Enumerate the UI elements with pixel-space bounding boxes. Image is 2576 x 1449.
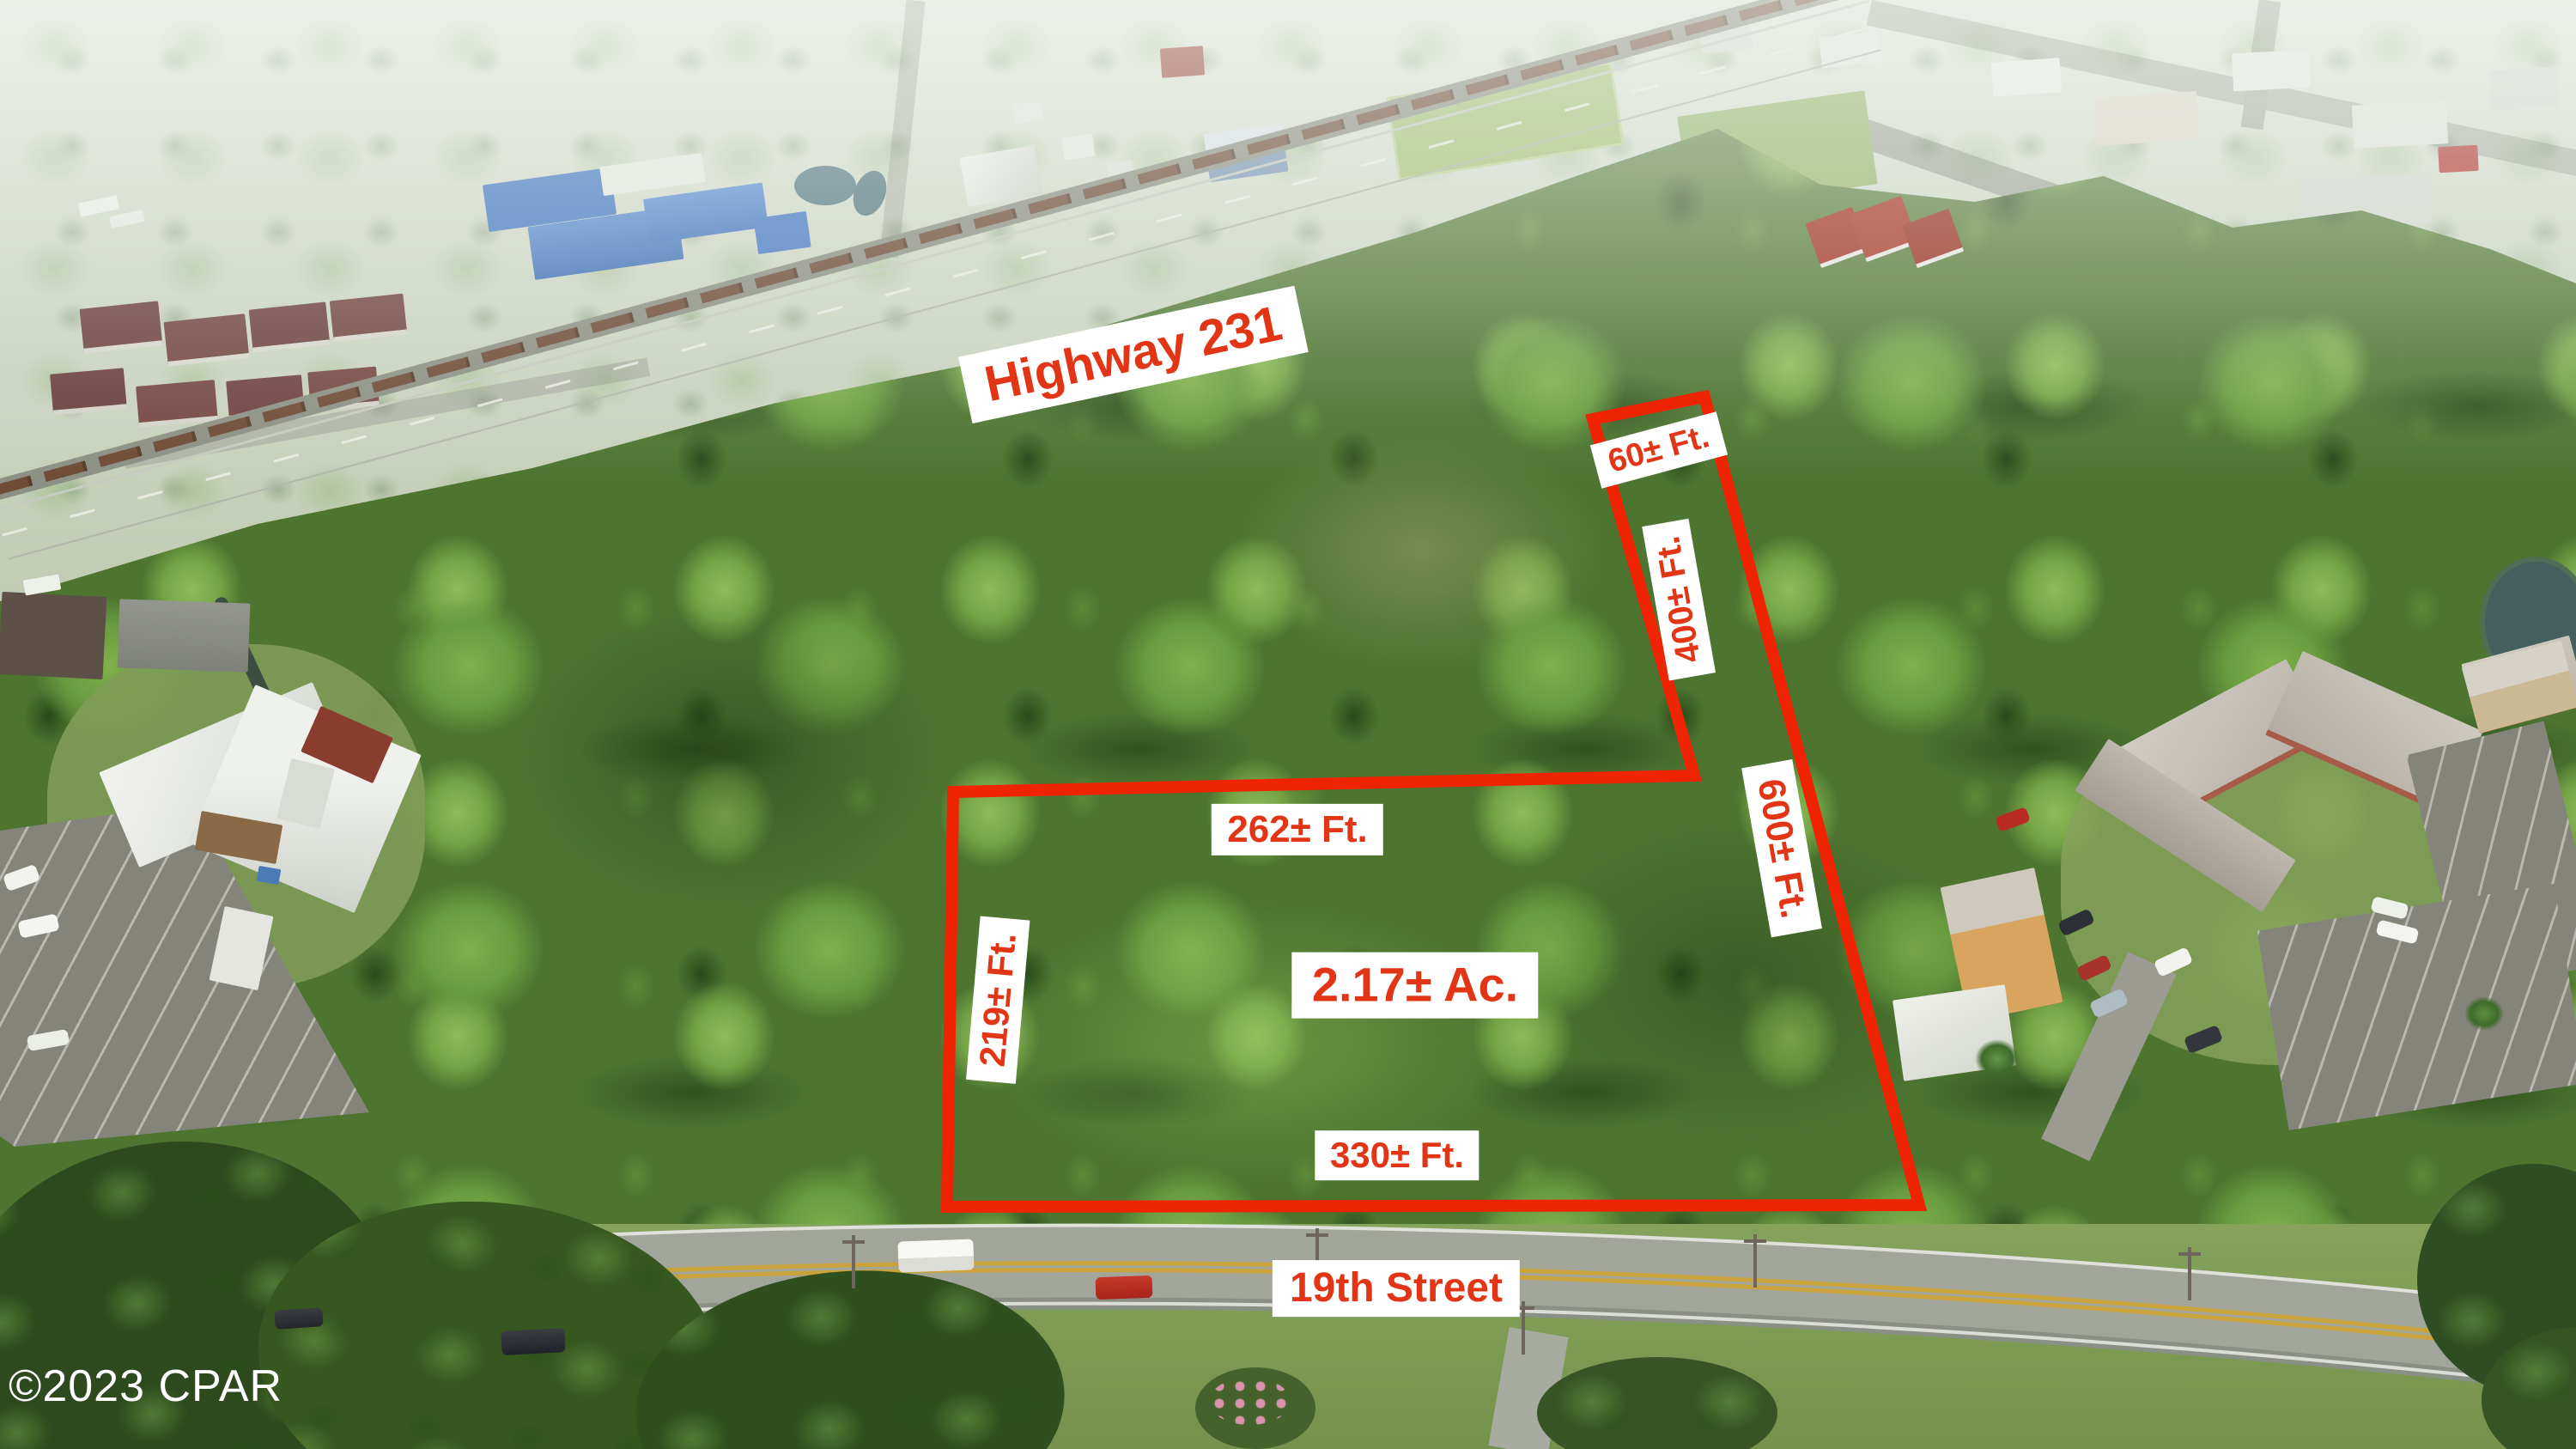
property-boundary	[0, 0, 2576, 1449]
street-19th-label: 19th Street	[1273, 1260, 1520, 1317]
copyright-watermark: ©2023 CPAR	[9, 1361, 283, 1412]
south-edge-330ft-label: 330± Ft.	[1315, 1130, 1479, 1180]
north-edge-262ft-label: 262± Ft.	[1212, 804, 1383, 855]
area-label: 2.17± Ac.	[1291, 953, 1538, 1019]
aerial-photo: Highway 231 60± Ft. 400± Ft. 262± Ft. 60…	[0, 0, 2576, 1449]
